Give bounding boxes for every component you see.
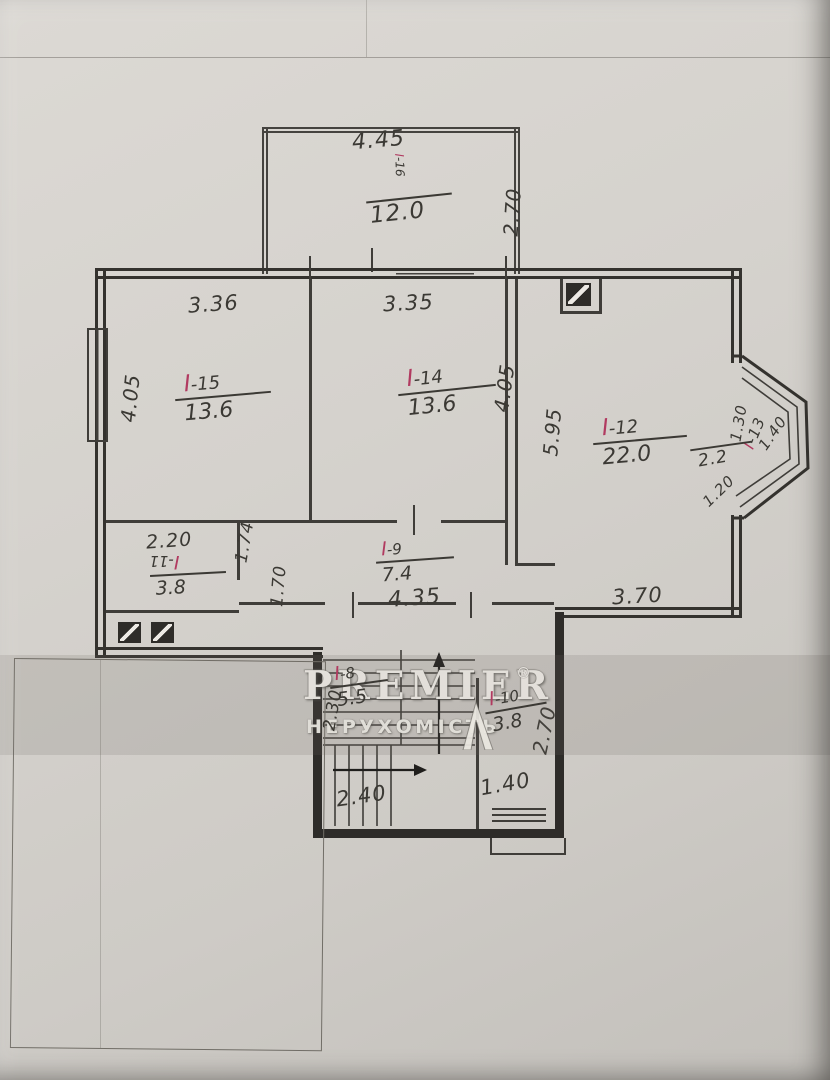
door-tick-r14 — [413, 505, 415, 535]
entry-step — [490, 838, 566, 855]
wall-r14-hall-a — [309, 520, 397, 523]
wall-r15-hall — [106, 520, 309, 523]
dim-r11-upper-right: 1.74 — [231, 520, 258, 565]
wall-r15-r14 — [309, 279, 312, 522]
wall-main-bottom-right — [555, 607, 742, 618]
vent-notch-bottom — [560, 311, 602, 314]
room-label-r14: I-14 13.6 — [395, 357, 498, 422]
dim-r15-width: 3.36 — [187, 290, 239, 317]
paper-crease — [366, 0, 367, 57]
wall-r12-left-lower-a — [505, 522, 508, 565]
dim-r14-width: 3.35 — [382, 290, 434, 317]
chimney-hatch-icon — [566, 283, 591, 306]
dim-r12-height: 5.95 — [538, 407, 566, 457]
dim-balcony-width: 4.45 — [351, 126, 406, 156]
vent-hatch-icon — [151, 622, 174, 643]
registered-mark-icon: ® — [516, 664, 531, 682]
room-id-balcony: I-16 — [392, 153, 407, 177]
dim-r10-width: 1.40 — [478, 768, 532, 800]
dim-r12-width: 3.70 — [611, 583, 663, 610]
vent-hatch-icon — [118, 622, 141, 643]
vent-notch-left — [560, 279, 563, 313]
dim-r15-height: 4.05 — [116, 373, 145, 424]
wall-hall-r12-stub — [515, 563, 555, 566]
room-label-r15: I-15 13.6 — [173, 364, 273, 427]
room-label-r11: I-11 3.8 — [149, 548, 227, 600]
wall-stairwell-bottom — [313, 829, 564, 838]
room-label-r9: I-9 7.4 — [374, 533, 455, 586]
window-room10 — [492, 808, 546, 824]
area-balcony: 12.0 — [369, 197, 427, 229]
window-room15 — [87, 328, 108, 442]
wall-r14-hall-b — [441, 520, 505, 523]
door-tick-stairs2 — [470, 592, 472, 618]
wall-r14-r12-b — [515, 279, 518, 522]
stairs-direction-arrow-icon — [333, 764, 427, 776]
wall-r11-bottom — [106, 610, 239, 613]
paper-fold-line — [0, 57, 830, 58]
wall-main-left — [95, 268, 106, 658]
floorplan-scan: 4.45 2.70 I-16 12.0 — [0, 0, 830, 1080]
wall-hall-bottom-c — [492, 602, 554, 605]
dim-r11-lower-right: 1.70 — [267, 564, 291, 607]
door-tick-stairs — [352, 592, 354, 618]
wall-main-top — [95, 268, 742, 279]
vent-notch-right — [599, 279, 602, 313]
dim-balcony-depth: 2.70 — [499, 187, 526, 237]
dim-r9-width: 4.35 — [387, 584, 442, 613]
balcony-wall-left — [262, 127, 268, 274]
room-label-r12: I-12 22.0 — [591, 408, 689, 471]
wall-r12-left-lower-b — [515, 522, 518, 565]
